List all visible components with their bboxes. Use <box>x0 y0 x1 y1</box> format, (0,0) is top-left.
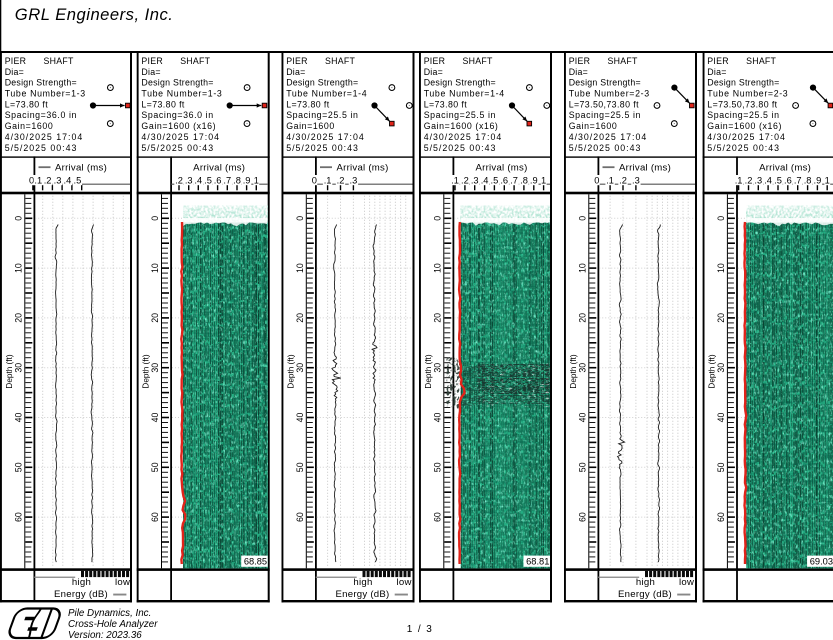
svg-text:60: 60 <box>295 512 305 522</box>
svg-text:50: 50 <box>433 462 443 472</box>
svg-text:0: 0 <box>433 216 443 221</box>
svg-text:.9: .9 <box>814 176 822 186</box>
svg-text:Design Strength=: Design Strength= <box>707 78 779 88</box>
svg-text:Gain=1600 (x16): Gain=1600 (x16) <box>707 121 782 131</box>
svg-text:Energy (dB): Energy (dB) <box>54 589 108 600</box>
svg-text:10: 10 <box>295 263 305 273</box>
svg-text:.3: .3 <box>350 176 358 186</box>
svg-text:Design Strength=: Design Strength= <box>424 78 496 88</box>
svg-text:Energy (dB): Energy (dB) <box>618 589 672 600</box>
svg-text:60: 60 <box>433 512 443 522</box>
svg-text:Design Strength=: Design Strength= <box>569 78 641 88</box>
svg-text:20: 20 <box>716 313 726 323</box>
svg-text:60: 60 <box>578 512 588 522</box>
svg-text:60: 60 <box>14 512 24 522</box>
svg-text:0: 0 <box>14 216 24 221</box>
svg-text:.2: .2 <box>745 176 753 186</box>
svg-text:50: 50 <box>150 462 160 472</box>
svg-text:.7: .7 <box>510 176 518 186</box>
svg-text:30: 30 <box>433 363 443 373</box>
svg-text:Spacing=25.5 in: Spacing=25.5 in <box>286 110 358 120</box>
svg-text:Arrival (ms): Arrival (ms) <box>55 162 107 173</box>
svg-text:30: 30 <box>14 363 24 373</box>
svg-text:.6: .6 <box>500 176 508 186</box>
svg-text:Design Strength=: Design Strength= <box>141 78 213 88</box>
svg-text:SHAFT: SHAFT <box>608 56 638 66</box>
svg-text:L=73.80 ft: L=73.80 ft <box>286 99 330 109</box>
svg-text:.2: .2 <box>44 176 52 186</box>
svg-text:5/5/2025 00:43: 5/5/2025 00:43 <box>707 143 780 153</box>
svg-text:.8: .8 <box>804 176 812 186</box>
svg-text:Dia=: Dia= <box>569 67 588 77</box>
svg-text:60: 60 <box>716 512 726 522</box>
svg-text:Spacing=25.5 in: Spacing=25.5 in <box>569 110 641 120</box>
svg-text:0: 0 <box>716 216 726 221</box>
svg-text:0: 0 <box>29 176 34 186</box>
svg-text:Arrival (ms): Arrival (ms) <box>475 162 527 173</box>
svg-text:10: 10 <box>578 263 588 273</box>
svg-text:30: 30 <box>578 363 588 373</box>
svg-text:PIER: PIER <box>5 56 27 66</box>
svg-text:40: 40 <box>14 413 24 423</box>
svg-text:1 / 3: 1 / 3 <box>407 624 433 635</box>
svg-text:Arrival (ms): Arrival (ms) <box>337 162 389 173</box>
svg-text:5/5/2025 00:43: 5/5/2025 00:43 <box>141 143 214 153</box>
svg-text:.8: .8 <box>520 176 528 186</box>
svg-text:20: 20 <box>433 313 443 323</box>
svg-text:10: 10 <box>150 263 160 273</box>
svg-text:L=73.50,73.80 ft: L=73.50,73.80 ft <box>569 99 639 109</box>
svg-text:20: 20 <box>295 313 305 323</box>
svg-text:40: 40 <box>433 413 443 423</box>
svg-text:Depth (ft): Depth (ft) <box>5 354 14 388</box>
svg-text:40: 40 <box>578 413 588 423</box>
svg-text:0: 0 <box>594 176 599 186</box>
svg-text:4/30/2025 17:04: 4/30/2025 17:04 <box>286 132 365 142</box>
svg-text:Tube Number=1-4: Tube Number=1-4 <box>424 89 505 99</box>
svg-text:low: low <box>679 577 694 588</box>
svg-text:Arrival (ms): Arrival (ms) <box>759 162 811 173</box>
svg-text:SHAFT: SHAFT <box>325 56 355 66</box>
svg-text:.6: .6 <box>214 176 222 186</box>
svg-text:PIER: PIER <box>707 56 729 66</box>
svg-text:Spacing=36.0 in: Spacing=36.0 in <box>5 110 77 120</box>
svg-text:Dia=: Dia= <box>424 67 443 77</box>
svg-text:Dia=: Dia= <box>286 67 305 77</box>
svg-text:50: 50 <box>578 462 588 472</box>
svg-text:GRL Engineers, Inc.: GRL Engineers, Inc. <box>15 5 174 24</box>
svg-text:20: 20 <box>14 313 24 323</box>
svg-text:Spacing=25.5 in: Spacing=25.5 in <box>707 110 779 120</box>
svg-text:Tube Number=2-3: Tube Number=2-3 <box>569 89 650 99</box>
svg-text:30: 30 <box>716 363 726 373</box>
svg-text:L=73.80 ft: L=73.80 ft <box>424 99 468 109</box>
svg-text:68.85: 68.85 <box>244 556 267 566</box>
svg-text:L=73.80 ft: L=73.80 ft <box>141 99 185 109</box>
svg-text:Design Strength=: Design Strength= <box>286 78 358 88</box>
svg-text:0: 0 <box>150 216 160 221</box>
svg-text:low: low <box>397 577 412 588</box>
svg-text:.3: .3 <box>185 176 193 186</box>
svg-text:Cross-Hole Analyzer: Cross-Hole Analyzer <box>68 619 158 630</box>
svg-text:PIER: PIER <box>141 56 163 66</box>
svg-text:4/30/2025 17:04: 4/30/2025 17:04 <box>707 132 786 142</box>
svg-text:L=73.50,73.80 ft: L=73.50,73.80 ft <box>707 99 777 109</box>
svg-text:Gain=1600 (x16): Gain=1600 (x16) <box>424 121 499 131</box>
svg-text:Dia=: Dia= <box>707 67 726 77</box>
svg-text:Depth (ft): Depth (ft) <box>708 354 717 388</box>
svg-text:30: 30 <box>295 363 305 373</box>
svg-text:.1: .1 <box>451 176 459 186</box>
svg-text:.6: .6 <box>784 176 792 186</box>
svg-text:Tube Number=1-4: Tube Number=1-4 <box>286 89 367 99</box>
svg-text:Design Strength=: Design Strength= <box>5 78 77 88</box>
svg-text:Depth (ft): Depth (ft) <box>424 354 433 388</box>
svg-text:.2: .2 <box>461 176 469 186</box>
svg-text:.3: .3 <box>754 176 762 186</box>
svg-text:Energy (dB): Energy (dB) <box>336 589 390 600</box>
svg-text:Tube Number=1-3: Tube Number=1-3 <box>141 89 222 99</box>
svg-text:Gain=1600: Gain=1600 <box>286 121 335 131</box>
svg-text:Spacing=25.5 in: Spacing=25.5 in <box>424 110 496 120</box>
svg-text:.4: .4 <box>194 176 202 186</box>
svg-text:.5: .5 <box>204 176 212 186</box>
svg-text:Tube Number=1-3: Tube Number=1-3 <box>5 89 86 99</box>
svg-text:PIER: PIER <box>286 56 308 66</box>
svg-text:.1: .1 <box>735 176 743 186</box>
svg-text:5/5/2025 00:43: 5/5/2025 00:43 <box>5 143 78 153</box>
svg-text:.1: .1 <box>324 176 332 186</box>
svg-text:Arrival (ms): Arrival (ms) <box>193 162 245 173</box>
svg-text:68.81: 68.81 <box>526 556 549 566</box>
svg-text:1: 1 <box>254 176 259 186</box>
svg-text:.3: .3 <box>471 176 479 186</box>
svg-text:Dia=: Dia= <box>5 67 24 77</box>
svg-text:SHAFT: SHAFT <box>746 56 776 66</box>
svg-text:5/5/2025 00:43: 5/5/2025 00:43 <box>424 143 497 153</box>
svg-text:Gain=1600: Gain=1600 <box>569 121 618 131</box>
svg-text:0: 0 <box>312 176 317 186</box>
svg-text:Version: 2023.36: Version: 2023.36 <box>68 630 142 640</box>
svg-text:0: 0 <box>295 216 305 221</box>
svg-text:.9: .9 <box>530 176 538 186</box>
svg-text:.5: .5 <box>74 176 82 186</box>
svg-text:50: 50 <box>295 462 305 472</box>
svg-text:.7: .7 <box>794 176 802 186</box>
svg-text:40: 40 <box>295 413 305 423</box>
svg-text:Gain=1600: Gain=1600 <box>5 121 54 131</box>
svg-text:PIER: PIER <box>424 56 446 66</box>
svg-text:40: 40 <box>150 413 160 423</box>
svg-text:5/5/2025 00:43: 5/5/2025 00:43 <box>286 143 359 153</box>
svg-text:50: 50 <box>14 462 24 472</box>
svg-text:high: high <box>72 577 91 588</box>
svg-text:.3: .3 <box>632 176 640 186</box>
svg-text:1: 1 <box>825 176 830 186</box>
svg-text:high: high <box>353 577 372 588</box>
svg-text:SHAFT: SHAFT <box>463 56 493 66</box>
svg-text:50: 50 <box>716 462 726 472</box>
svg-text:10: 10 <box>14 263 24 273</box>
svg-text:.2: .2 <box>337 176 345 186</box>
svg-text:high: high <box>636 577 655 588</box>
svg-text:.7: .7 <box>223 176 231 186</box>
svg-text:Dia=: Dia= <box>141 67 160 77</box>
svg-text:Tube Number=2-3: Tube Number=2-3 <box>707 89 788 99</box>
svg-text:10: 10 <box>716 263 726 273</box>
svg-text:Spacing=36.0 in: Spacing=36.0 in <box>141 110 213 120</box>
svg-text:4/30/2025 17:04: 4/30/2025 17:04 <box>141 132 220 142</box>
svg-text:.1: .1 <box>606 176 614 186</box>
svg-text:60: 60 <box>150 512 160 522</box>
svg-text:Depth (ft): Depth (ft) <box>142 354 151 388</box>
svg-text:4/30/2025 17:04: 4/30/2025 17:04 <box>5 132 84 142</box>
svg-text:10: 10 <box>433 263 443 273</box>
svg-text:30: 30 <box>150 363 160 373</box>
svg-text:SHAFT: SHAFT <box>44 56 74 66</box>
svg-text:Depth (ft): Depth (ft) <box>286 354 295 388</box>
svg-text:.2: .2 <box>175 176 183 186</box>
svg-text:.8: .8 <box>233 176 241 186</box>
svg-text:69.03: 69.03 <box>810 556 833 566</box>
svg-text:.2: .2 <box>619 176 627 186</box>
svg-text:Pile Dynamics, Inc.: Pile Dynamics, Inc. <box>68 608 151 619</box>
svg-text:SHAFT: SHAFT <box>180 56 210 66</box>
svg-text:.3: .3 <box>54 176 62 186</box>
svg-text:Gain=1600 (x16): Gain=1600 (x16) <box>141 121 216 131</box>
svg-text:Arrival (ms): Arrival (ms) <box>619 162 671 173</box>
svg-text:.5: .5 <box>774 176 782 186</box>
svg-text:.1: .1 <box>34 176 42 186</box>
svg-text:40: 40 <box>716 413 726 423</box>
svg-text:L=73.80 ft: L=73.80 ft <box>5 99 49 109</box>
svg-text:PIER: PIER <box>569 56 591 66</box>
svg-text:20: 20 <box>150 313 160 323</box>
svg-text:.4: .4 <box>481 176 489 186</box>
svg-text:Depth (ft): Depth (ft) <box>569 354 578 388</box>
svg-text:4/30/2025 17:04: 4/30/2025 17:04 <box>569 132 648 142</box>
svg-text:low: low <box>115 577 130 588</box>
svg-text:20: 20 <box>578 313 588 323</box>
svg-text:0: 0 <box>578 216 588 221</box>
svg-text:.4: .4 <box>64 176 72 186</box>
svg-text:4/30/2025 17:04: 4/30/2025 17:04 <box>424 132 503 142</box>
svg-text:.9: .9 <box>243 176 251 186</box>
svg-text:1: 1 <box>541 176 546 186</box>
svg-text:.4: .4 <box>764 176 772 186</box>
svg-text:.5: .5 <box>491 176 499 186</box>
svg-text:5/5/2025 00:43: 5/5/2025 00:43 <box>569 143 642 153</box>
